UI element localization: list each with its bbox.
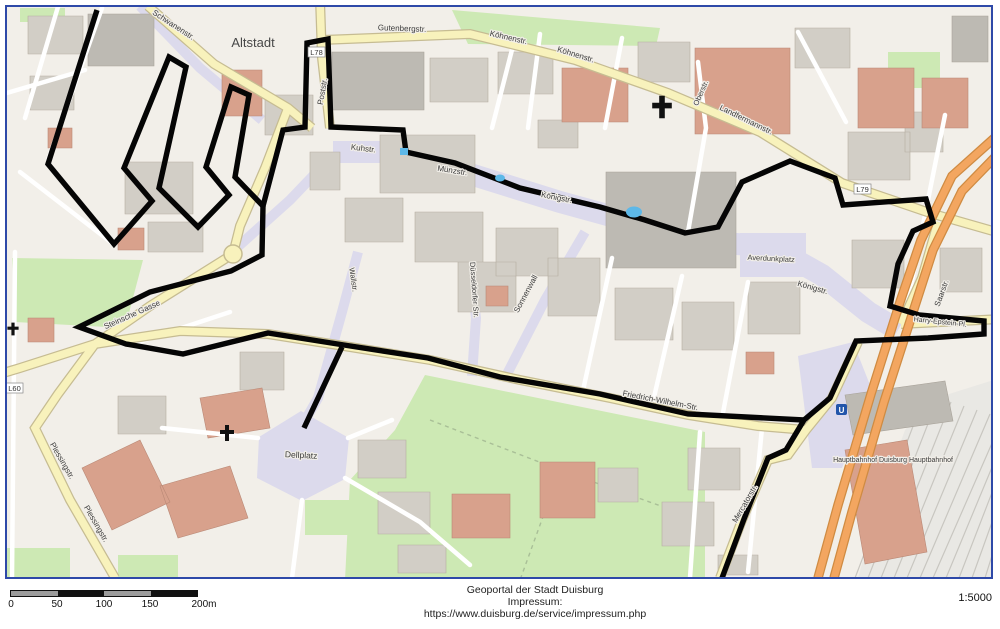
scale-tick: 200m	[191, 599, 216, 610]
attribution-line-2: Impressum:	[335, 596, 735, 608]
attribution-line-3: https://www.duisburg.de/service/impressu…	[335, 608, 735, 620]
scale-bar-ticks: 0 50 100 150 200m	[10, 599, 210, 613]
scale-bar-segment	[11, 591, 58, 596]
map-canvas[interactable]: U L78 L79 L60 Altstadt Schwanenstr. Post…	[7, 7, 991, 577]
scale-bar-segment	[58, 591, 105, 596]
place-label-hauptbahnhof: Hauptbahnhof Duisburg Hauptbahnhof	[833, 457, 953, 464]
svg-text:L79: L79	[856, 185, 869, 194]
scale-bar: 0 50 100 150 200m	[10, 590, 210, 613]
scale-bar-segment	[151, 591, 198, 596]
svg-text:U: U	[839, 406, 845, 415]
attribution-line-1: Geoportal der Stadt Duisburg	[335, 584, 735, 596]
scale-bar-segment	[104, 591, 151, 596]
scale-ratio: 1:5000	[958, 592, 992, 604]
scale-tick: 50	[51, 599, 62, 610]
place-label-dellplatz: Dellplatz	[285, 449, 318, 461]
scale-bar-graphic	[10, 590, 198, 597]
svg-text:L60: L60	[8, 384, 21, 393]
scale-tick: 150	[142, 599, 159, 610]
scale-tick: 100	[96, 599, 113, 610]
map-viewport[interactable]: U L78 L79 L60 Altstadt Schwanenstr. Post…	[5, 5, 993, 579]
place-label-altstadt: Altstadt	[231, 35, 275, 50]
svg-text:L78: L78	[310, 48, 323, 57]
street-label-gutenbergstr: Gutenbergstr.	[378, 23, 427, 34]
transit-station-icon: U	[836, 404, 847, 415]
scale-tick: 0	[8, 599, 14, 610]
geoportal-map-export: U L78 L79 L60 Altstadt Schwanenstr. Post…	[0, 0, 1000, 629]
attribution: Geoportal der Stadt Duisburg Impressum: …	[335, 584, 735, 620]
